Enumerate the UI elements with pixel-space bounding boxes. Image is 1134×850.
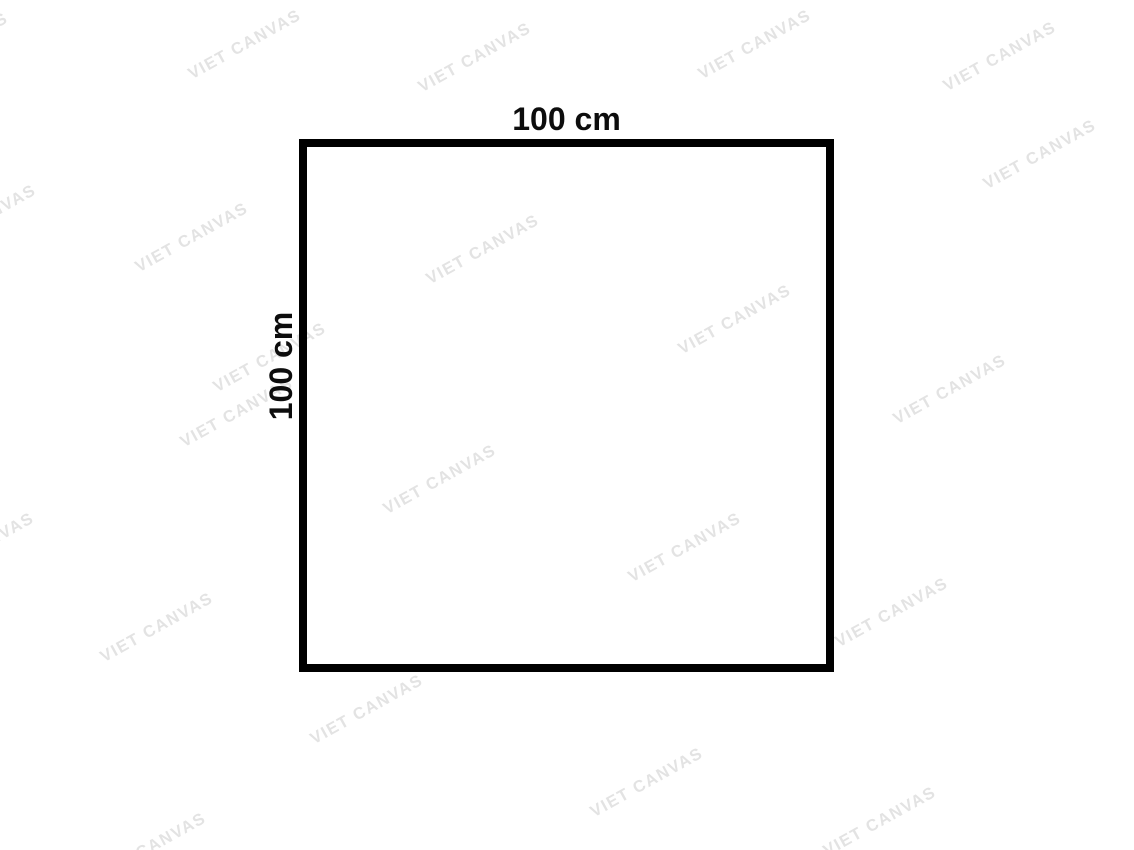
watermark-text: VIET CANVAS xyxy=(0,509,38,587)
dimension-diagram: VIET CANVASVIET CANVASVIET CANVASVIET CA… xyxy=(0,0,1134,850)
watermark-text: VIET CANVAS xyxy=(820,783,940,850)
watermark-text: VIET CANVAS xyxy=(185,6,305,84)
width-dimension-label: 100 cm xyxy=(299,103,834,137)
watermark-text: VIET CANVAS xyxy=(90,809,210,850)
watermark-text: VIET CANVAS xyxy=(132,199,252,277)
watermark-text: VIET CANVAS xyxy=(307,671,427,749)
watermark-text: VIET CANVAS xyxy=(0,9,12,87)
watermark-text: VIET CANVAS xyxy=(695,6,815,84)
watermark-text: VIET CANVAS xyxy=(415,19,535,97)
watermark-text: VIET CANVAS xyxy=(940,18,1060,96)
height-dimension-label: 100 cm xyxy=(265,312,297,421)
watermark-text: VIET CANVAS xyxy=(980,116,1100,194)
watermark-text: VIET CANVAS xyxy=(890,351,1010,429)
watermark-text: VIET CANVAS xyxy=(0,181,40,259)
watermark-text: VIET CANVAS xyxy=(97,589,217,667)
canvas-outline-square xyxy=(299,139,834,672)
watermark-text: VIET CANVAS xyxy=(832,574,952,652)
watermark-text: VIET CANVAS xyxy=(587,744,707,822)
